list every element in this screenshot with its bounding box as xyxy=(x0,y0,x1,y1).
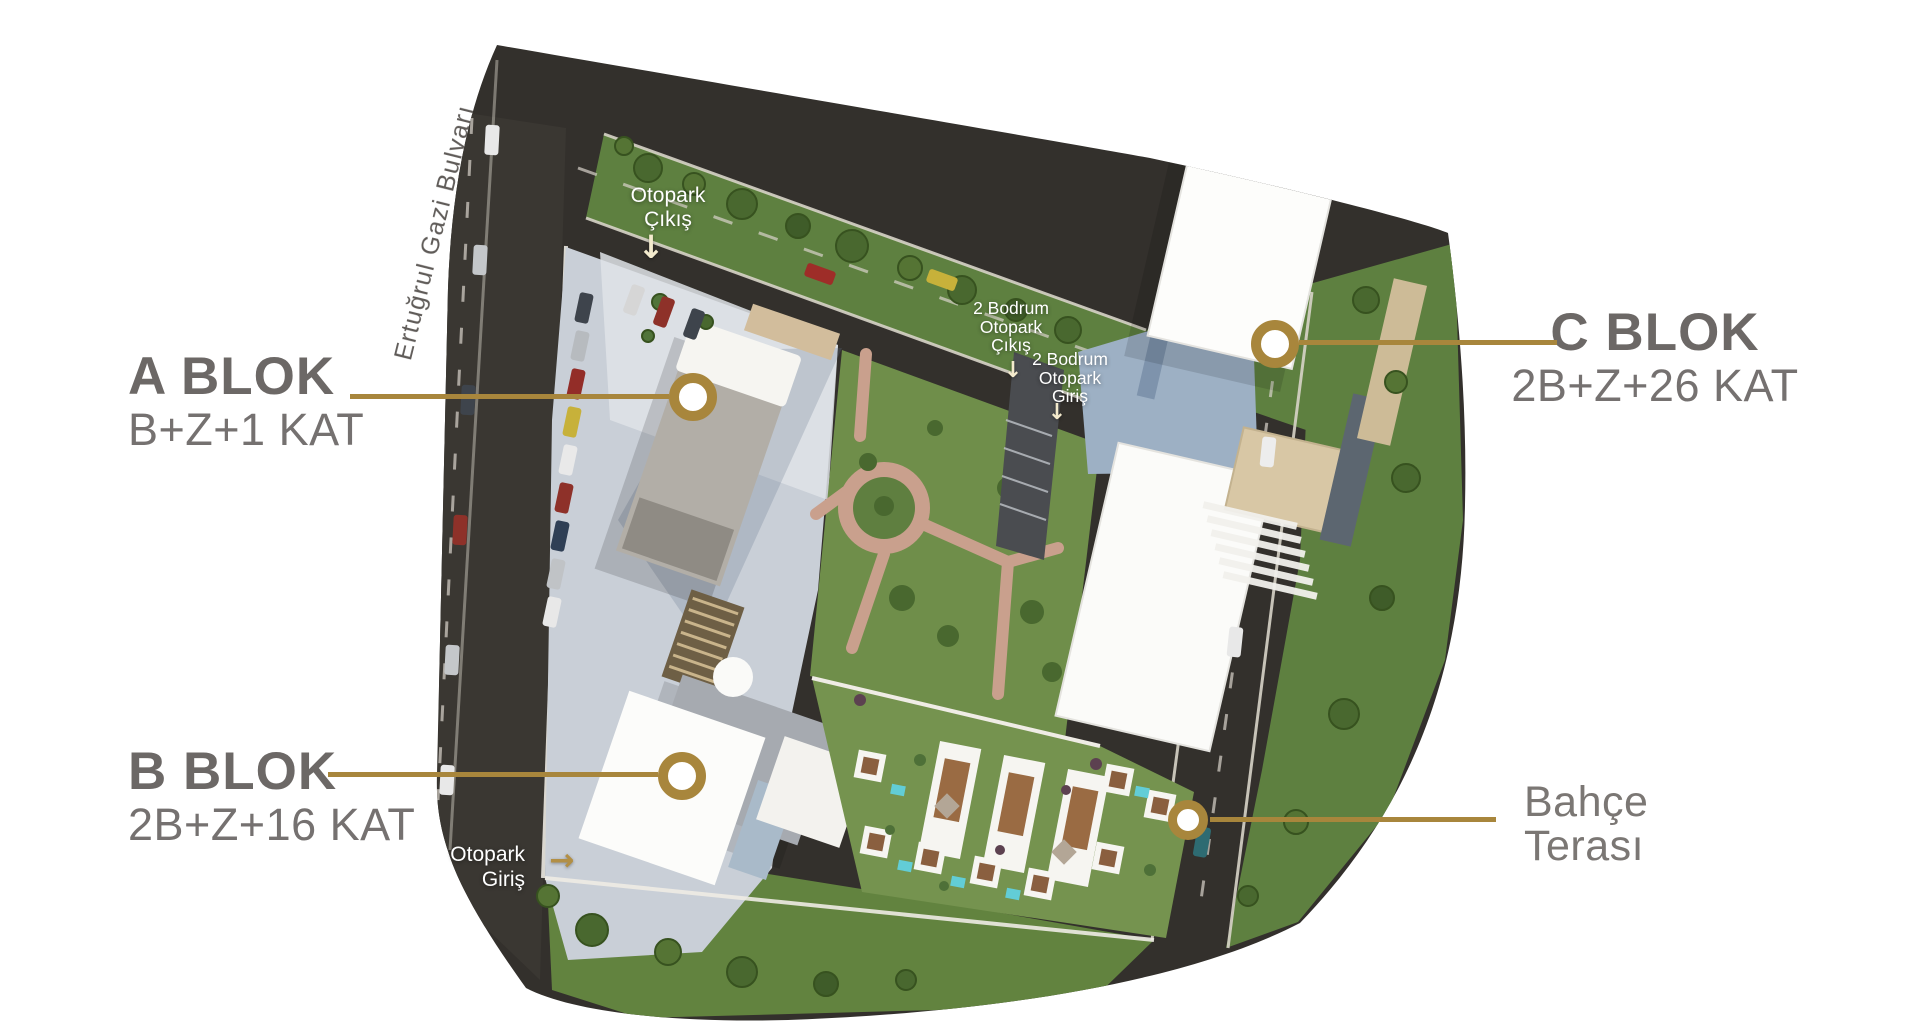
basement-entry-label: 2 Bodrum Otopark Giriş xyxy=(1005,350,1135,406)
site-plan: Ertuğrul Gazi Bulvarı Otopark Çıkış ↓ 2 … xyxy=(0,0,1920,1031)
block-a-floors: B+Z+1 KAT xyxy=(128,407,364,452)
garden-terrace-line1: Bahçe xyxy=(1524,780,1648,824)
otopark-exit-label: Otopark Çıkış xyxy=(598,184,738,232)
block-a-callout-line xyxy=(350,394,669,399)
block-b-callout-line xyxy=(328,772,658,777)
basement-entry-line2: Otopark xyxy=(1005,369,1135,388)
block-b-label[interactable]: B BLOK 2B+Z+16 KAT xyxy=(128,745,415,847)
garden-terrace-callout-line xyxy=(1210,817,1496,822)
garden-terrace-marker[interactable] xyxy=(1168,800,1208,840)
basement-exit-line1: 2 Bodrum xyxy=(946,299,1076,318)
block-c-callout-line xyxy=(1299,340,1557,345)
block-a-title: A BLOK xyxy=(128,350,364,403)
block-a-marker[interactable] xyxy=(669,373,717,421)
block-c-marker[interactable] xyxy=(1251,320,1299,368)
otopark-exit-arrow-icon: ↓ xyxy=(633,228,669,266)
garden-terrace-label[interactable]: Bahçe Terası xyxy=(1524,780,1648,868)
block-b-floors: 2B+Z+16 KAT xyxy=(128,802,415,847)
aerial-render xyxy=(0,0,1920,1031)
otopark-entry-arrow-icon: → xyxy=(545,843,579,878)
garden-terrace-line2: Terası xyxy=(1524,824,1648,868)
block-c-title: C BLOK xyxy=(1490,306,1820,359)
basement-entry-line1: 2 Bodrum xyxy=(1005,350,1135,369)
block-b-marker[interactable] xyxy=(658,752,706,800)
otopark-entry-line2: Giriş xyxy=(395,867,525,892)
basement-entry-arrow-icon: ↓ xyxy=(1042,400,1072,425)
basement-exit-label: 2 Bodrum Otopark Çıkış xyxy=(946,299,1076,355)
basement-exit-line2: Otopark xyxy=(946,318,1076,337)
block-c-label[interactable]: C BLOK 2B+Z+26 KAT xyxy=(1490,306,1820,408)
block-c-floors: 2B+Z+26 KAT xyxy=(1490,363,1820,408)
block-a-label[interactable]: A BLOK B+Z+1 KAT xyxy=(128,350,364,452)
otopark-exit-line1: Otopark xyxy=(598,184,738,208)
